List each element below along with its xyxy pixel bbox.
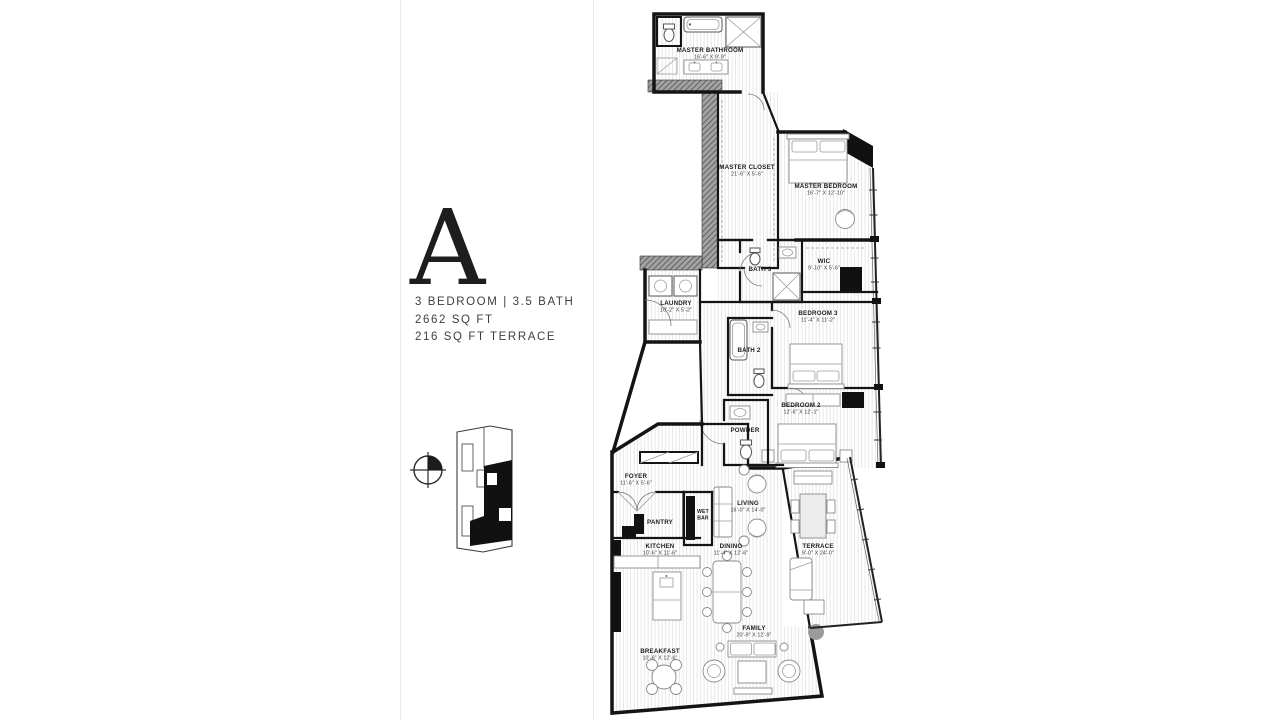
breakfast-table-icon	[647, 660, 682, 695]
building-keyplan	[457, 426, 512, 552]
counter	[649, 320, 697, 334]
room-label: BATH 2	[737, 347, 760, 354]
sofa-icon	[714, 487, 732, 537]
bathtub-icon	[730, 320, 747, 360]
room-dims: 20'-9" X 12'-9"	[737, 633, 772, 639]
room-label: FOYER	[625, 473, 648, 480]
tall-cabinet	[612, 572, 621, 632]
room-dims: 16'-0" X 14'-0"	[731, 508, 766, 514]
sink-icon	[753, 322, 768, 332]
toilet-icon	[741, 440, 752, 459]
room-label: BREAKFAST	[640, 648, 680, 655]
outdoor-sofa-icon	[794, 471, 832, 484]
lounge-chair-icon	[790, 558, 812, 600]
hatched-walls	[640, 80, 722, 270]
room-label: BEDROOM 3	[798, 310, 838, 317]
room-label: BEDROOM 2	[781, 402, 821, 409]
armchair-icon	[748, 519, 766, 537]
room-dims: 16'-7" X 12'-10"	[807, 191, 845, 197]
room-label: MASTER BEDROOM	[795, 183, 858, 190]
bed-icon	[787, 134, 849, 183]
room-label: FAMILY	[742, 625, 766, 632]
room-dims: 11'-6" X 5'-6"	[620, 481, 652, 487]
bed-icon	[788, 344, 844, 389]
coffee-table-icon	[738, 661, 766, 683]
vertical-guide-line	[400, 0, 401, 720]
room-label: MASTER BATHROOM	[677, 47, 744, 54]
room-dims: 16'-6" X 9'-9"	[694, 55, 726, 61]
unit-specs: 3 BEDROOM | 3.5 BATH 2662 SQ FT 216 SQ F…	[415, 294, 574, 347]
spec-area: 2662 SQ FT	[415, 312, 574, 330]
room-label: BATH 3	[748, 266, 771, 273]
room-label: WIC	[818, 258, 831, 265]
entry-closet-icon	[640, 452, 698, 463]
kitchen-counter	[614, 556, 700, 568]
floor-plan-canvas: MASTER BATHROOM 16'-6" X 9'-9" MASTER CL…	[0, 0, 1280, 720]
shower-icon	[773, 273, 800, 300]
media-console-icon	[734, 688, 772, 694]
dryer-icon	[674, 276, 697, 296]
room-label: MASTER CLOSET	[719, 164, 775, 171]
bathtub-icon	[684, 17, 722, 32]
bar-counter	[686, 496, 695, 540]
room-dims: 21'-6" X 5'-6"	[731, 172, 763, 178]
toilet-icon	[664, 24, 675, 42]
room-dims: 11'-4" X 11'-2"	[801, 318, 835, 324]
shower-icon	[726, 17, 761, 47]
room-dims: 9'-10" X 5'-6"	[808, 266, 840, 272]
room-label: BAR	[697, 516, 709, 522]
double-vanity-icon	[684, 60, 728, 74]
sink-icon	[779, 247, 796, 258]
toilet-icon	[754, 369, 764, 388]
room-dims: 11'-4" X 12'-6"	[714, 551, 749, 557]
room-dims: 12'-6" X 12'-1"	[784, 410, 819, 416]
room-label: TERRACE	[802, 543, 833, 550]
unit-letter: A	[410, 196, 485, 300]
room-label: LIVING	[737, 500, 759, 507]
spec-bed-bath: 3 BEDROOM | 3.5 BATH	[415, 294, 574, 312]
compass-icon	[410, 452, 446, 488]
washer-icon	[649, 276, 672, 296]
room-label: POWDER	[730, 427, 759, 434]
room-dims: 9'-0" X 24'-0"	[802, 551, 834, 557]
vertical-guide-line	[593, 0, 594, 720]
room-label: DINING	[720, 543, 743, 550]
structure-column	[840, 267, 862, 291]
armchair-icon	[836, 210, 855, 229]
sink-icon	[730, 406, 750, 419]
structure-block	[876, 462, 885, 468]
cabinet-block	[622, 526, 636, 537]
room-label: LAUNDRY	[660, 300, 692, 307]
structure-block	[842, 392, 864, 408]
room-label: KITCHEN	[646, 543, 675, 550]
tall-cabinet	[612, 540, 621, 558]
floorplan-page: A 3 BEDROOM | 3.5 BATH 2662 SQ FT 216 SQ…	[0, 0, 1280, 720]
room-dims: 10'-6" X 12'-6"	[643, 656, 678, 662]
toilet-icon	[750, 248, 760, 265]
kitchen-island-icon	[653, 572, 681, 620]
room-dims: 10'-2" X 5'-2"	[660, 308, 692, 314]
side-table-icon	[739, 465, 749, 475]
side-table-icon	[804, 600, 824, 614]
spec-terrace: 216 SQ FT TERRACE	[415, 329, 574, 347]
armchair-icon	[748, 475, 766, 493]
room-label: WET	[697, 509, 709, 515]
room-label: PANTRY	[647, 519, 674, 526]
room-dims: 10'-6" X 11'-6"	[643, 551, 678, 557]
